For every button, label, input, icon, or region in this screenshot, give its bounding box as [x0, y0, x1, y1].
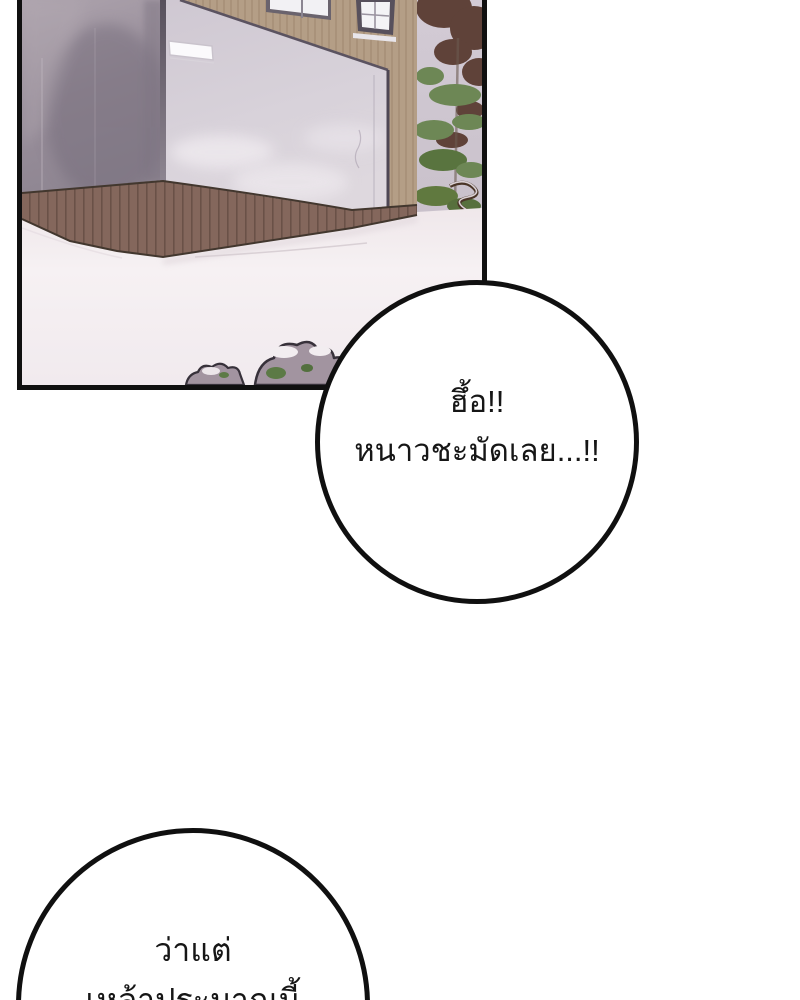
snow-cap [202, 367, 220, 375]
building-corner-post [160, 0, 166, 181]
speech-text: ว่าแต่ เหล้าประมาณนี้ [21, 925, 365, 1000]
glass-wall-left [22, 0, 169, 200]
green-leaves [219, 372, 229, 378]
cloud-reflection [304, 124, 384, 152]
speech-text: ฮึ้อ!! หนาวชะมัดเลย...!! [320, 377, 634, 475]
snow-cap [309, 346, 331, 356]
speech-line: ว่าแต่ [21, 925, 365, 975]
comic-page: ฮึ้อ!! หนาวชะมัดเลย...!! ว่าแต่ เหล้าประ… [0, 0, 800, 1000]
green-leaves [301, 364, 313, 372]
speech-line: เหล้าประมาณนี้ [21, 975, 365, 1000]
speech-bubble-liquor: ว่าแต่ เหล้าประมาณนี้ [16, 828, 370, 1000]
cloud-reflection [170, 135, 274, 169]
green-leaves [266, 367, 286, 379]
speech-bubble-cold: ฮึ้อ!! หนาวชะมัดเลย...!! [315, 280, 639, 604]
snow-cap [270, 346, 298, 358]
speech-line: ฮึ้อ!! [320, 377, 634, 426]
speech-line: หนาวชะมัดเลย...!! [320, 426, 634, 475]
